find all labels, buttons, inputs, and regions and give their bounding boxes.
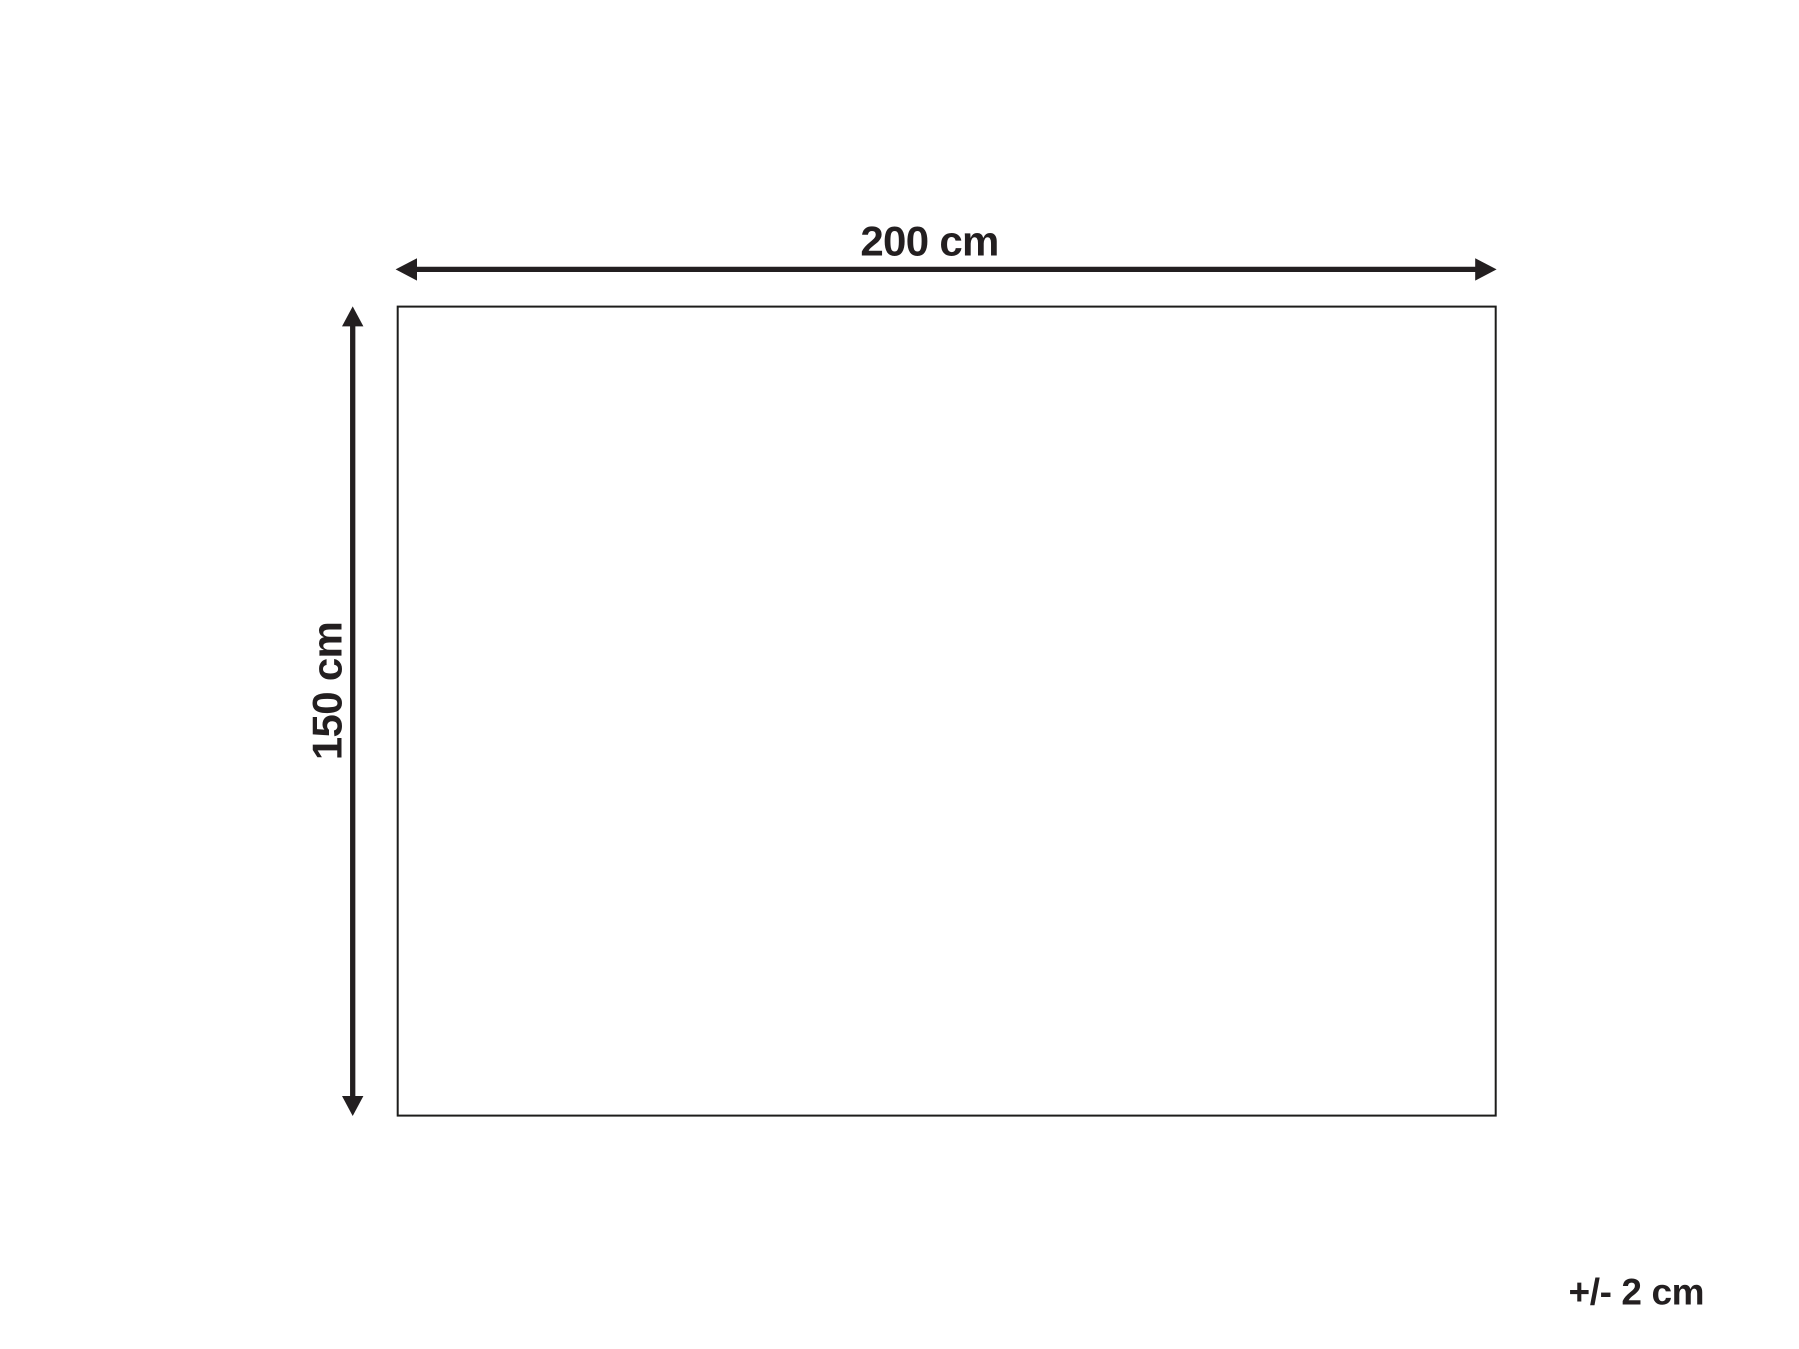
svg-text:+/- 2 cm: +/- 2 cm bbox=[1569, 1272, 1705, 1313]
svg-text:150 cm: 150 cm bbox=[304, 622, 351, 760]
svg-text:200 cm: 200 cm bbox=[860, 218, 998, 265]
